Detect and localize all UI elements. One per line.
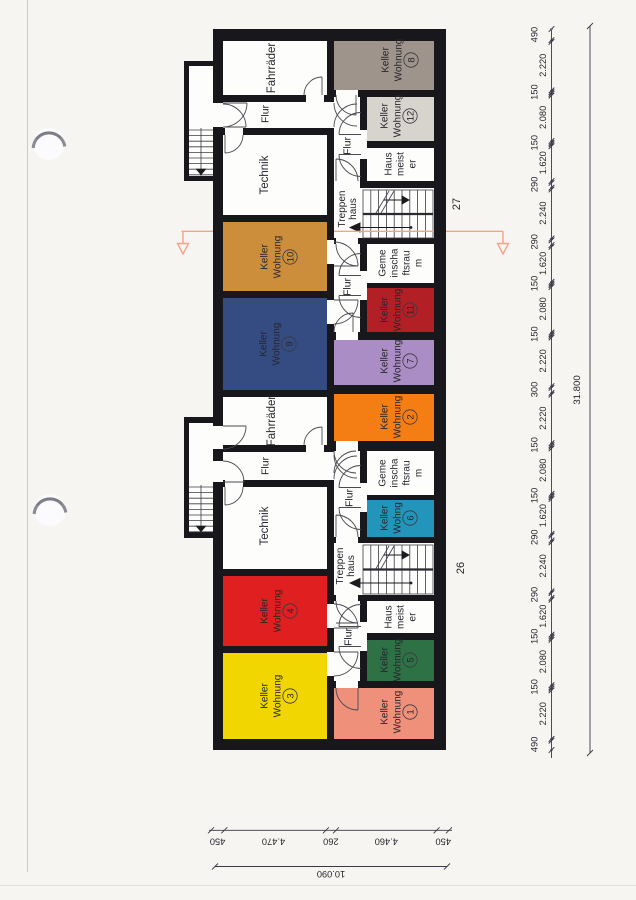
svg-text:450: 450 (435, 837, 451, 847)
svg-text:10: 10 (285, 252, 296, 263)
svg-text:haus: haus (348, 198, 359, 220)
svg-text:ftsrau: ftsrau (402, 460, 413, 485)
svg-text:Flur: Flur (342, 136, 354, 155)
svg-text:meist: meist (396, 152, 407, 176)
svg-text:290: 290 (530, 177, 540, 193)
svg-text:Keller: Keller (260, 683, 271, 709)
svg-text:Keller: Keller (380, 505, 391, 531)
svg-text:Wohnung: Wohnung (273, 590, 284, 633)
svg-text:2.080: 2.080 (538, 106, 548, 129)
svg-text:Wohnung: Wohnung (394, 39, 405, 82)
svg-text:Keller: Keller (380, 647, 391, 673)
svg-text:Wohnung: Wohnung (393, 340, 404, 383)
svg-text:2.220: 2.220 (538, 349, 548, 372)
svg-text:7: 7 (405, 358, 416, 363)
svg-text:26: 26 (455, 562, 467, 574)
svg-text:27: 27 (451, 198, 463, 210)
svg-text:Keller: Keller (380, 297, 391, 323)
svg-text:150: 150 (530, 276, 540, 292)
svg-text:12: 12 (405, 111, 416, 122)
svg-text:1.620: 1.620 (538, 504, 548, 527)
svg-text:31.800: 31.800 (572, 375, 583, 404)
svg-text:1.620: 1.620 (538, 151, 548, 174)
svg-text:Fahrräder: Fahrräder (266, 43, 278, 94)
svg-text:4: 4 (285, 608, 296, 613)
svg-text:Wohnung: Wohnung (273, 236, 284, 279)
svg-text:260: 260 (323, 837, 339, 847)
svg-text:10.090: 10.090 (317, 869, 345, 879)
svg-text:Treppen: Treppen (337, 191, 348, 228)
svg-text:5: 5 (405, 657, 416, 662)
svg-text:haus: haus (346, 555, 357, 577)
svg-text:Wohng: Wohng (393, 502, 404, 534)
svg-text:150: 150 (530, 135, 540, 151)
svg-text:150: 150 (530, 629, 540, 645)
svg-text:inscha: inscha (390, 458, 401, 487)
svg-text:Fahrräder: Fahrräder (266, 396, 278, 447)
svg-text:490: 490 (530, 27, 540, 43)
svg-text:1.620: 1.620 (538, 605, 548, 628)
svg-text:Keller: Keller (380, 348, 391, 374)
svg-text:Keller: Keller (260, 598, 271, 624)
svg-text:Keller: Keller (380, 699, 391, 725)
svg-text:ftsrau: ftsrau (402, 250, 413, 275)
svg-text:Wohnung: Wohnung (272, 323, 283, 366)
svg-text:3: 3 (285, 693, 296, 698)
svg-text:Haus: Haus (384, 605, 395, 628)
svg-text:8: 8 (406, 57, 417, 62)
svg-text:Flur: Flur (260, 104, 272, 123)
svg-text:Geme: Geme (378, 249, 389, 277)
svg-text:150: 150 (530, 326, 540, 342)
svg-text:Wohnung: Wohnung (393, 691, 404, 734)
svg-text:290: 290 (530, 529, 540, 545)
svg-text:er: er (408, 159, 419, 169)
svg-text:Wohnung: Wohnung (273, 675, 284, 718)
svg-text:300: 300 (530, 382, 540, 398)
svg-text:450: 450 (210, 837, 226, 847)
svg-text:490: 490 (530, 737, 540, 753)
svg-text:2.220: 2.220 (538, 54, 548, 77)
svg-text:Flur: Flur (343, 627, 355, 646)
svg-text:2.080: 2.080 (538, 459, 548, 482)
svg-text:Flur: Flur (342, 277, 354, 296)
svg-text:Geme: Geme (378, 459, 389, 487)
svg-text:150: 150 (530, 679, 540, 695)
svg-text:2.080: 2.080 (538, 297, 548, 320)
svg-text:290: 290 (530, 234, 540, 250)
svg-text:1.620: 1.620 (538, 252, 548, 275)
svg-text:2.240: 2.240 (538, 201, 548, 224)
svg-text:meist: meist (396, 605, 407, 629)
svg-text:Wohnung: Wohnung (393, 639, 404, 682)
svg-text:inscha: inscha (390, 248, 401, 277)
svg-text:6: 6 (405, 515, 416, 520)
svg-text:Technik: Technik (259, 155, 271, 194)
svg-text:Keller: Keller (259, 331, 270, 357)
svg-text:150: 150 (530, 488, 540, 504)
svg-text:m: m (414, 469, 425, 477)
svg-text:Treppen: Treppen (335, 548, 346, 585)
svg-text:m: m (414, 259, 425, 267)
svg-text:er: er (408, 612, 419, 622)
svg-text:9: 9 (284, 341, 295, 346)
svg-text:Keller: Keller (381, 47, 392, 73)
svg-text:Keller: Keller (380, 404, 391, 430)
svg-text:Keller: Keller (380, 103, 391, 129)
svg-text:2.220: 2.220 (538, 702, 548, 725)
svg-text:Flur: Flur (344, 488, 356, 507)
svg-text:150: 150 (530, 437, 540, 453)
svg-text:Wohnung: Wohnung (393, 95, 404, 138)
svg-text:2.240: 2.240 (538, 554, 548, 577)
svg-text:1: 1 (405, 709, 416, 714)
svg-text:2.220: 2.220 (538, 406, 548, 429)
svg-text:150: 150 (530, 84, 540, 100)
svg-text:Wohnung: Wohnung (393, 289, 404, 332)
svg-text:4.470: 4.470 (262, 837, 285, 847)
svg-text:Keller: Keller (260, 244, 271, 270)
svg-text:Haus: Haus (384, 152, 395, 175)
svg-text:2.080: 2.080 (538, 650, 548, 673)
svg-text:4.460: 4.460 (375, 837, 398, 847)
svg-text:Flur: Flur (260, 456, 272, 475)
svg-text:2: 2 (405, 414, 416, 419)
svg-text:290: 290 (530, 587, 540, 603)
svg-text:11: 11 (405, 305, 416, 315)
svg-text:Wohnung: Wohnung (393, 396, 404, 439)
svg-text:Technik: Technik (259, 506, 271, 545)
